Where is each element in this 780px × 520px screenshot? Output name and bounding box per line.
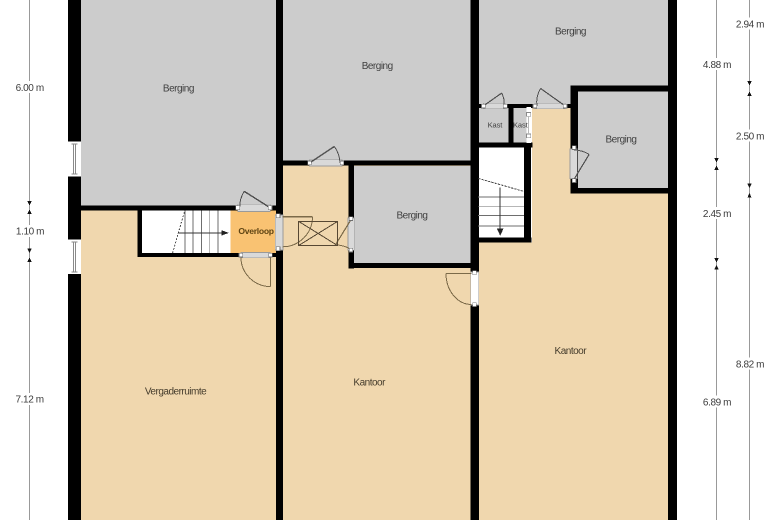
svg-text:2.50 m: 2.50 m (736, 131, 764, 142)
svg-text:Berging: Berging (606, 135, 637, 146)
svg-text:Kast: Kast (488, 121, 504, 130)
svg-text:2.94 m: 2.94 m (736, 19, 764, 30)
svg-text:Kantoor: Kantoor (353, 377, 386, 388)
svg-text:Kast: Kast (513, 121, 529, 130)
svg-text:1.10 m: 1.10 m (16, 227, 44, 238)
svg-text:4.88 m: 4.88 m (703, 60, 731, 71)
svg-text:Overloop: Overloop (238, 226, 273, 236)
svg-text:7.12 m: 7.12 m (16, 395, 44, 406)
svg-text:Kantoor: Kantoor (555, 346, 588, 357)
svg-text:2.45 m: 2.45 m (703, 209, 731, 220)
svg-text:Vergaderruimte: Vergaderruimte (145, 386, 207, 397)
svg-text:Berging: Berging (163, 84, 194, 95)
svg-text:8.82 m: 8.82 m (736, 359, 764, 370)
svg-text:Berging: Berging (397, 211, 428, 222)
svg-text:6.00 m: 6.00 m (16, 83, 44, 94)
svg-text:Berging: Berging (555, 27, 586, 38)
svg-text:6.89 m: 6.89 m (703, 397, 731, 408)
svg-text:Berging: Berging (362, 61, 393, 72)
